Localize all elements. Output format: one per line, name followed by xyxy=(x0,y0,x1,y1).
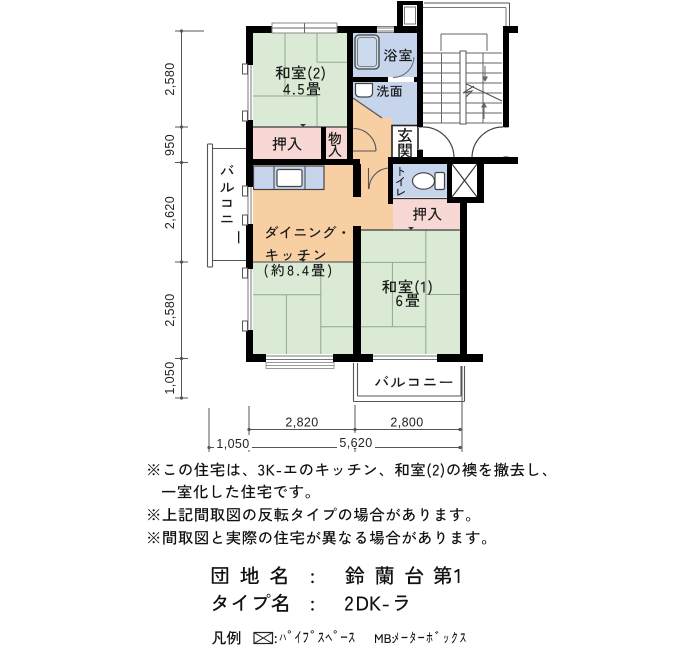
svg-text:1,050: 1,050 xyxy=(216,437,249,451)
svg-text:2,580: 2,580 xyxy=(163,293,177,326)
svg-text:1,050: 1,050 xyxy=(163,361,177,394)
svg-text:2,580: 2,580 xyxy=(163,62,177,95)
svg-text:2,620: 2,620 xyxy=(163,196,177,229)
svg-text:2,820: 2,820 xyxy=(285,416,318,430)
svg-text:5,620: 5,620 xyxy=(339,436,372,450)
svg-text:950: 950 xyxy=(163,134,177,156)
svg-text:2,800: 2,800 xyxy=(390,416,423,430)
